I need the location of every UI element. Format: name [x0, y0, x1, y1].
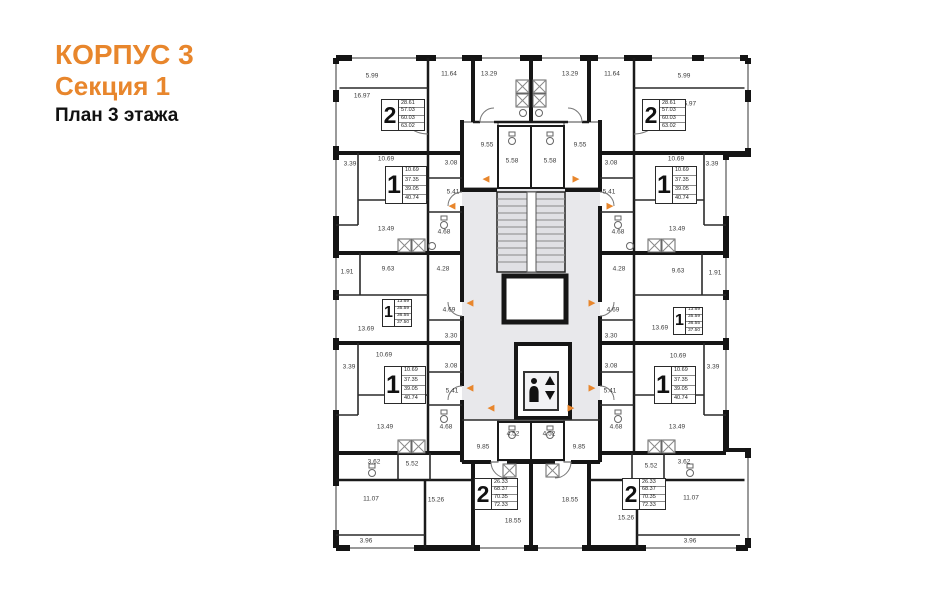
rooms-count: 1	[674, 308, 686, 334]
area-value: 10.69	[402, 367, 425, 376]
apartment-info-1room-lower-left: 1 10.69 37.35 39.05 40.74	[384, 366, 426, 404]
elevator-person-updown-icon	[524, 372, 558, 410]
apartment-info-2room-top-left: 2 28.61 57.03 60.03 63.02	[381, 99, 425, 131]
rooms-count: 2	[643, 100, 660, 130]
area-value: 10.69	[672, 367, 695, 376]
area-value: 72.33	[640, 502, 665, 509]
rooms-count: 2	[382, 100, 399, 130]
area-value: 39.05	[673, 186, 696, 195]
area-value: 40.74	[672, 395, 695, 403]
apartment-info-1room-lower-right: 1 10.69 37.35 39.05 40.74	[654, 366, 696, 404]
area-values: 13.69 35.59 36.55 37.50	[686, 308, 702, 334]
area-value: 37.50	[395, 320, 411, 326]
rooms-count: 1	[383, 300, 395, 326]
area-values: 28.61 57.03 60.03 63.02	[660, 100, 685, 130]
area-value: 39.05	[403, 186, 426, 195]
rooms-count: 1	[656, 167, 673, 203]
area-value: 10.69	[673, 167, 696, 176]
rooms-count: 1	[655, 367, 672, 403]
area-value: 37.35	[402, 376, 425, 385]
section-title: Секция 1	[55, 71, 194, 102]
staircase	[497, 192, 565, 272]
rooms-count: 1	[385, 367, 402, 403]
area-value: 10.69	[403, 167, 426, 176]
area-value: 39.05	[672, 386, 695, 395]
plan-header: КОРПУС 3 Секция 1 План 3 этажа	[55, 38, 194, 128]
elevator-shaft	[504, 276, 566, 322]
rooms-count: 2	[475, 479, 492, 509]
rooms-count: 1	[386, 167, 403, 203]
area-value: 37.35	[403, 176, 426, 185]
area-value: 63.02	[399, 123, 424, 130]
area-value: 63.02	[660, 123, 685, 130]
apartment-info-1room-middle-left: 1 13.69 35.59 36.55 37.50	[382, 299, 412, 327]
area-value: 37.35	[672, 376, 695, 385]
floor-title: План 3 этажа	[55, 104, 194, 129]
apartment-info-2room-bottom-left: 2 26.33 68.37 70.35 72.33	[474, 478, 518, 510]
area-values: 26.33 68.37 70.35 72.33	[640, 479, 665, 509]
area-value: 72.33	[492, 502, 517, 509]
area-values: 10.69 37.35 39.05 40.74	[672, 367, 695, 403]
area-value: 39.05	[402, 386, 425, 395]
floor-plan-page: КОРПУС 3 Секция 1 План 3 этажа	[0, 0, 941, 600]
area-values: 10.69 37.35 39.05 40.74	[402, 367, 425, 403]
area-value: 40.74	[402, 395, 425, 403]
elevator-cab	[516, 344, 570, 418]
area-values: 28.61 57.03 60.03 63.02	[399, 100, 424, 130]
apartment-info-2room-top-right: 2 28.61 57.03 60.03 63.02	[642, 99, 686, 131]
apartment-info-1room-upper-right: 1 10.69 37.35 39.05 40.74	[655, 166, 697, 204]
area-value: 40.74	[403, 195, 426, 203]
building-title: КОРПУС 3	[55, 38, 194, 71]
rooms-count: 2	[623, 479, 640, 509]
area-values: 10.69 37.35 39.05 40.74	[403, 167, 426, 203]
area-value: 37.50	[686, 328, 702, 334]
area-value: 40.74	[673, 195, 696, 203]
area-value: 37.35	[673, 176, 696, 185]
apartment-info-1room-middle-right: 1 13.69 35.59 36.55 37.50	[673, 307, 703, 335]
apartment-info-1room-upper-left: 1 10.69 37.35 39.05 40.74	[385, 166, 427, 204]
area-values: 10.69 37.35 39.05 40.74	[673, 167, 696, 203]
area-values: 13.69 35.59 36.55 37.50	[395, 300, 411, 326]
apartment-info-2room-bottom-right: 2 26.33 68.37 70.35 72.33	[622, 478, 666, 510]
area-values: 26.33 68.37 70.35 72.33	[492, 479, 517, 509]
